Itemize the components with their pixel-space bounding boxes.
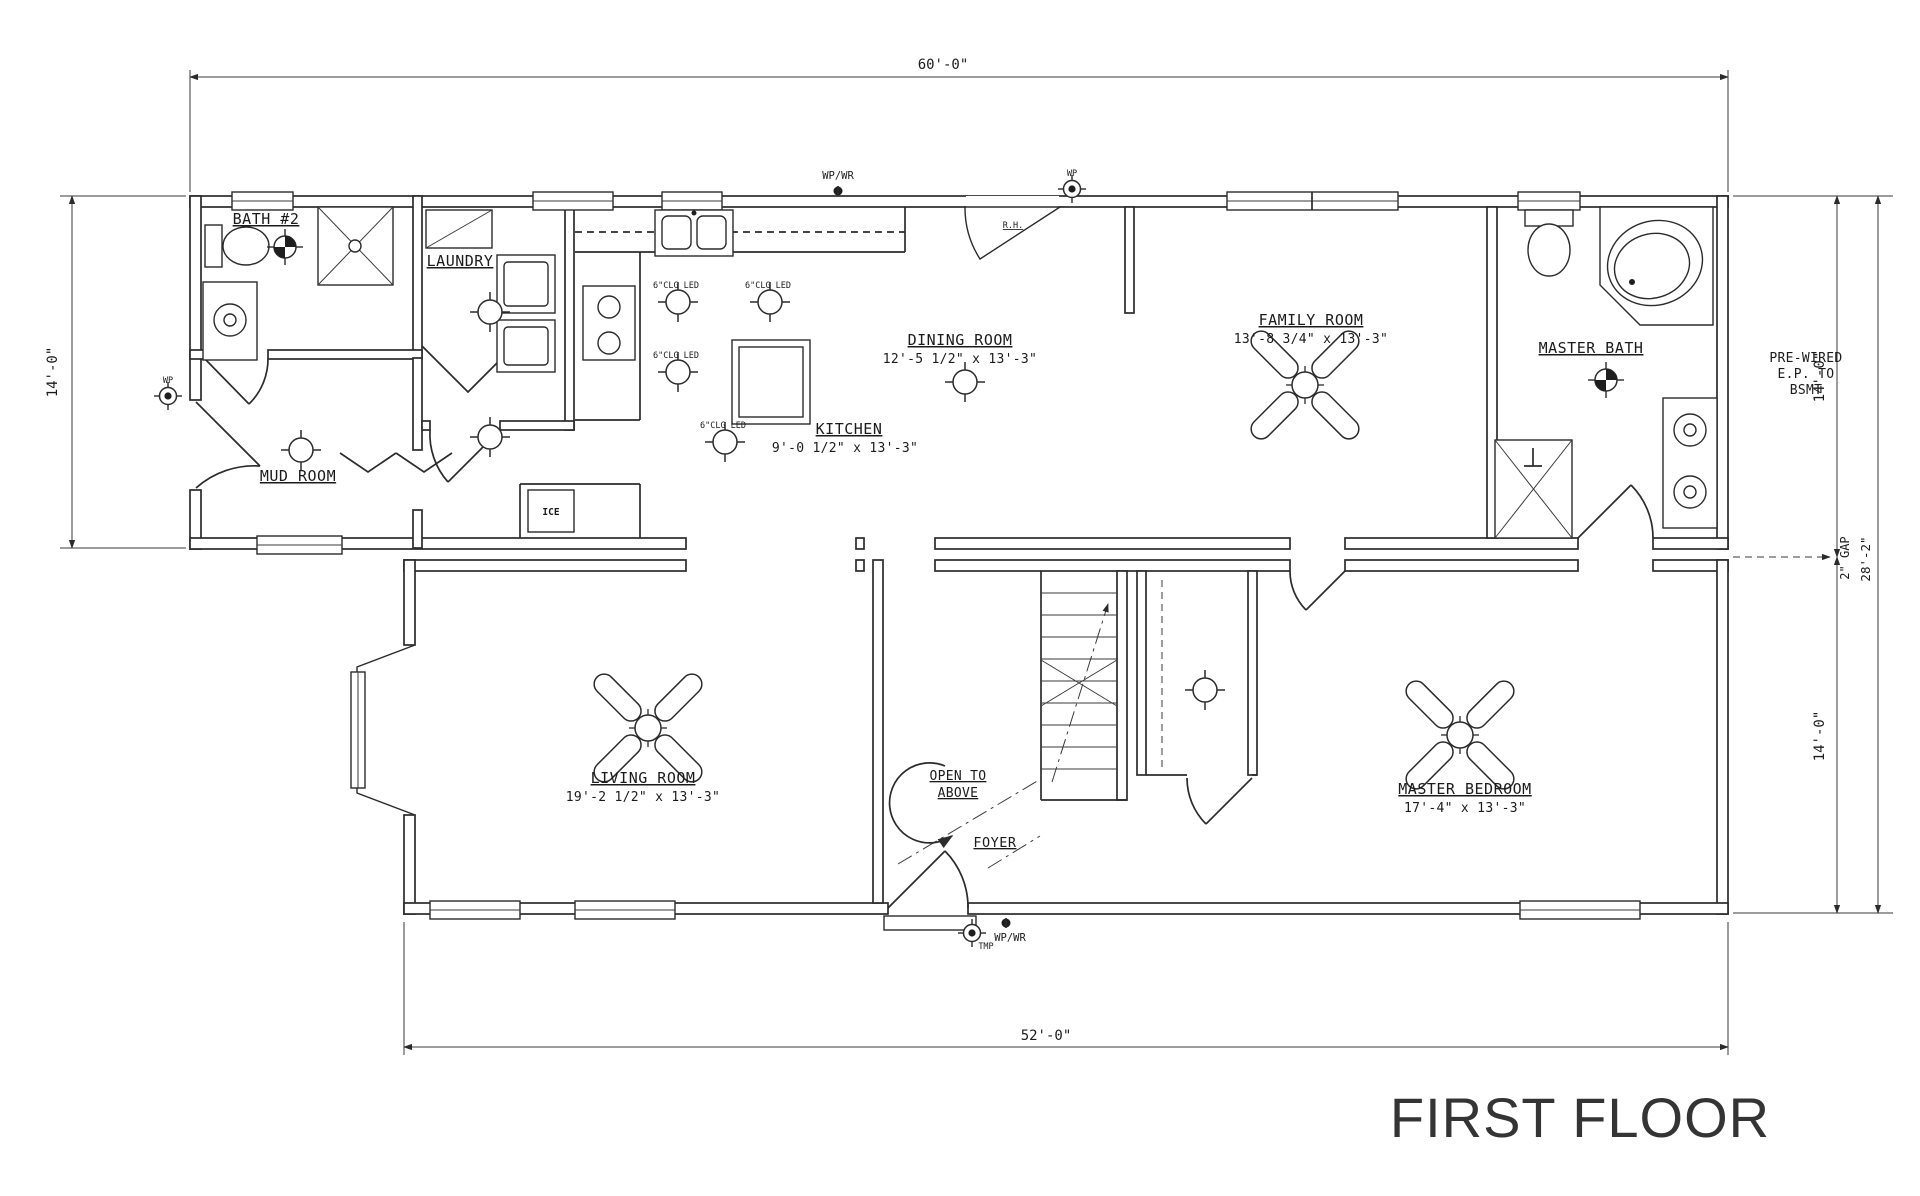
annotation-led: 6"CLG LED	[745, 281, 791, 291]
room-label-master-bath: MASTER BATH	[1539, 339, 1644, 357]
room-size-master-bedroom: 17'-4" x 13'-3"	[1404, 801, 1526, 816]
annotation-rh-door: R.H.	[1003, 221, 1023, 231]
room-label-open-above-2: ABOVE	[938, 786, 979, 801]
ceiling-light	[945, 362, 985, 402]
exhaust-fan-light	[267, 229, 303, 265]
ceiling-fan-bedroom	[1402, 677, 1518, 793]
window	[533, 192, 613, 210]
page-title: FIRST FLOOR	[1390, 1086, 1770, 1149]
dimension-top: 60'-0"	[190, 57, 1728, 192]
annotation-prewired-1: PRE-WIRED	[1769, 351, 1842, 366]
mudroom-exterior-door	[196, 402, 260, 488]
room-label-family: FAMILY ROOM	[1259, 311, 1364, 329]
room-label-dining: DINING ROOM	[908, 331, 1013, 349]
annotation-ice: ICE	[542, 507, 559, 518]
room-size-family: 13'-8 3/4" x 13'-3"	[1234, 332, 1388, 347]
ceiling-lights	[267, 229, 1624, 710]
floor-plan-drawing: 60'-0" 52'-0" 14'-0" 14'-0" 14'-0" 2" GA…	[0, 0, 1920, 1196]
bay-window	[351, 645, 415, 815]
wp-receptacle	[154, 382, 182, 410]
annotation-led: 6"CLG LED	[653, 281, 699, 291]
laundry-fixtures	[426, 210, 555, 372]
room-size-dining: 12'-5 1/2" x 13'-3"	[883, 352, 1037, 367]
bath2-fixtures	[203, 207, 393, 360]
room-label-master-bedroom: MASTER BEDROOM	[1398, 780, 1531, 798]
toilet-bowl	[223, 227, 269, 265]
toilet-tank	[205, 225, 222, 267]
dimension-right: 14'-0" 14'-0" 2" GAP 28'-2"	[1733, 196, 1893, 913]
room-label-kitchen: KITCHEN	[816, 420, 883, 438]
annotation-tmp: TMP	[978, 942, 993, 952]
window	[575, 901, 675, 919]
stairs	[1041, 571, 1127, 800]
window	[232, 192, 293, 210]
room-label-living: LIVING ROOM	[591, 769, 696, 787]
bedroom-closet-door	[1187, 778, 1252, 824]
window	[1518, 192, 1580, 210]
annotation-led: 6"CLG LED	[653, 351, 699, 361]
ceiling-light	[1185, 670, 1225, 710]
room-label-open-above-1: OPEN TO	[930, 769, 987, 784]
annotation-wp-top: WP	[1067, 169, 1077, 179]
window	[662, 192, 722, 210]
master-bath-door	[1578, 485, 1653, 538]
dimension-left: 14'-0"	[45, 196, 186, 548]
annotation-prewired-2: E.P. TO	[1778, 367, 1835, 382]
window	[1227, 192, 1398, 210]
entry-door-rh: R.H.	[965, 196, 1060, 259]
room-size-kitchen: 9'-0 1/2" x 13'-3"	[772, 441, 918, 456]
annotation-wp-wr-bottom: WP/WR	[994, 932, 1026, 944]
floor-plan-page: 60'-0" 52'-0" 14'-0" 14'-0" 14'-0" 2" GA…	[0, 0, 1920, 1196]
dim-left-label: 14'-0"	[45, 347, 61, 398]
lower-section-walls	[404, 560, 1728, 914]
dim-top-label: 60'-0"	[918, 57, 969, 73]
room-label-foyer: FOYER	[973, 835, 1017, 851]
annotation-wp-wr-top: WP/WR	[822, 170, 854, 182]
room-label-bath2: BATH #2	[233, 210, 300, 228]
annotation-wp-left: WP	[163, 376, 173, 386]
ceiling-light	[281, 430, 321, 470]
window	[1520, 901, 1640, 919]
toilet-bowl	[1528, 224, 1570, 276]
room-label-mud: MUD ROOM	[260, 467, 336, 485]
dim-right-gap-label: 2" GAP	[1838, 536, 1852, 579]
dim-right-total-label: 28'-2"	[1858, 536, 1873, 581]
window	[430, 901, 520, 919]
annotation-led: 6"CLG LED	[700, 421, 746, 431]
kitchen-fixtures: ICE	[520, 207, 905, 538]
room-label-laundry: LAUNDRY	[427, 252, 494, 270]
window	[257, 536, 342, 554]
dimension-bottom: 52'-0"	[404, 922, 1728, 1055]
annotation-prewired-3: BSMT	[1790, 383, 1823, 398]
exhaust-fan-light	[1588, 362, 1624, 398]
hall-to-bedroom-door	[1290, 571, 1345, 610]
dim-bottom-label: 52'-0"	[1021, 1028, 1072, 1044]
front-door	[884, 851, 976, 930]
bath2-door	[205, 359, 268, 404]
room-size-living: 19'-2 1/2" x 13'-3"	[566, 790, 720, 805]
dim-right-bottom-label: 14'-0"	[1812, 711, 1828, 762]
